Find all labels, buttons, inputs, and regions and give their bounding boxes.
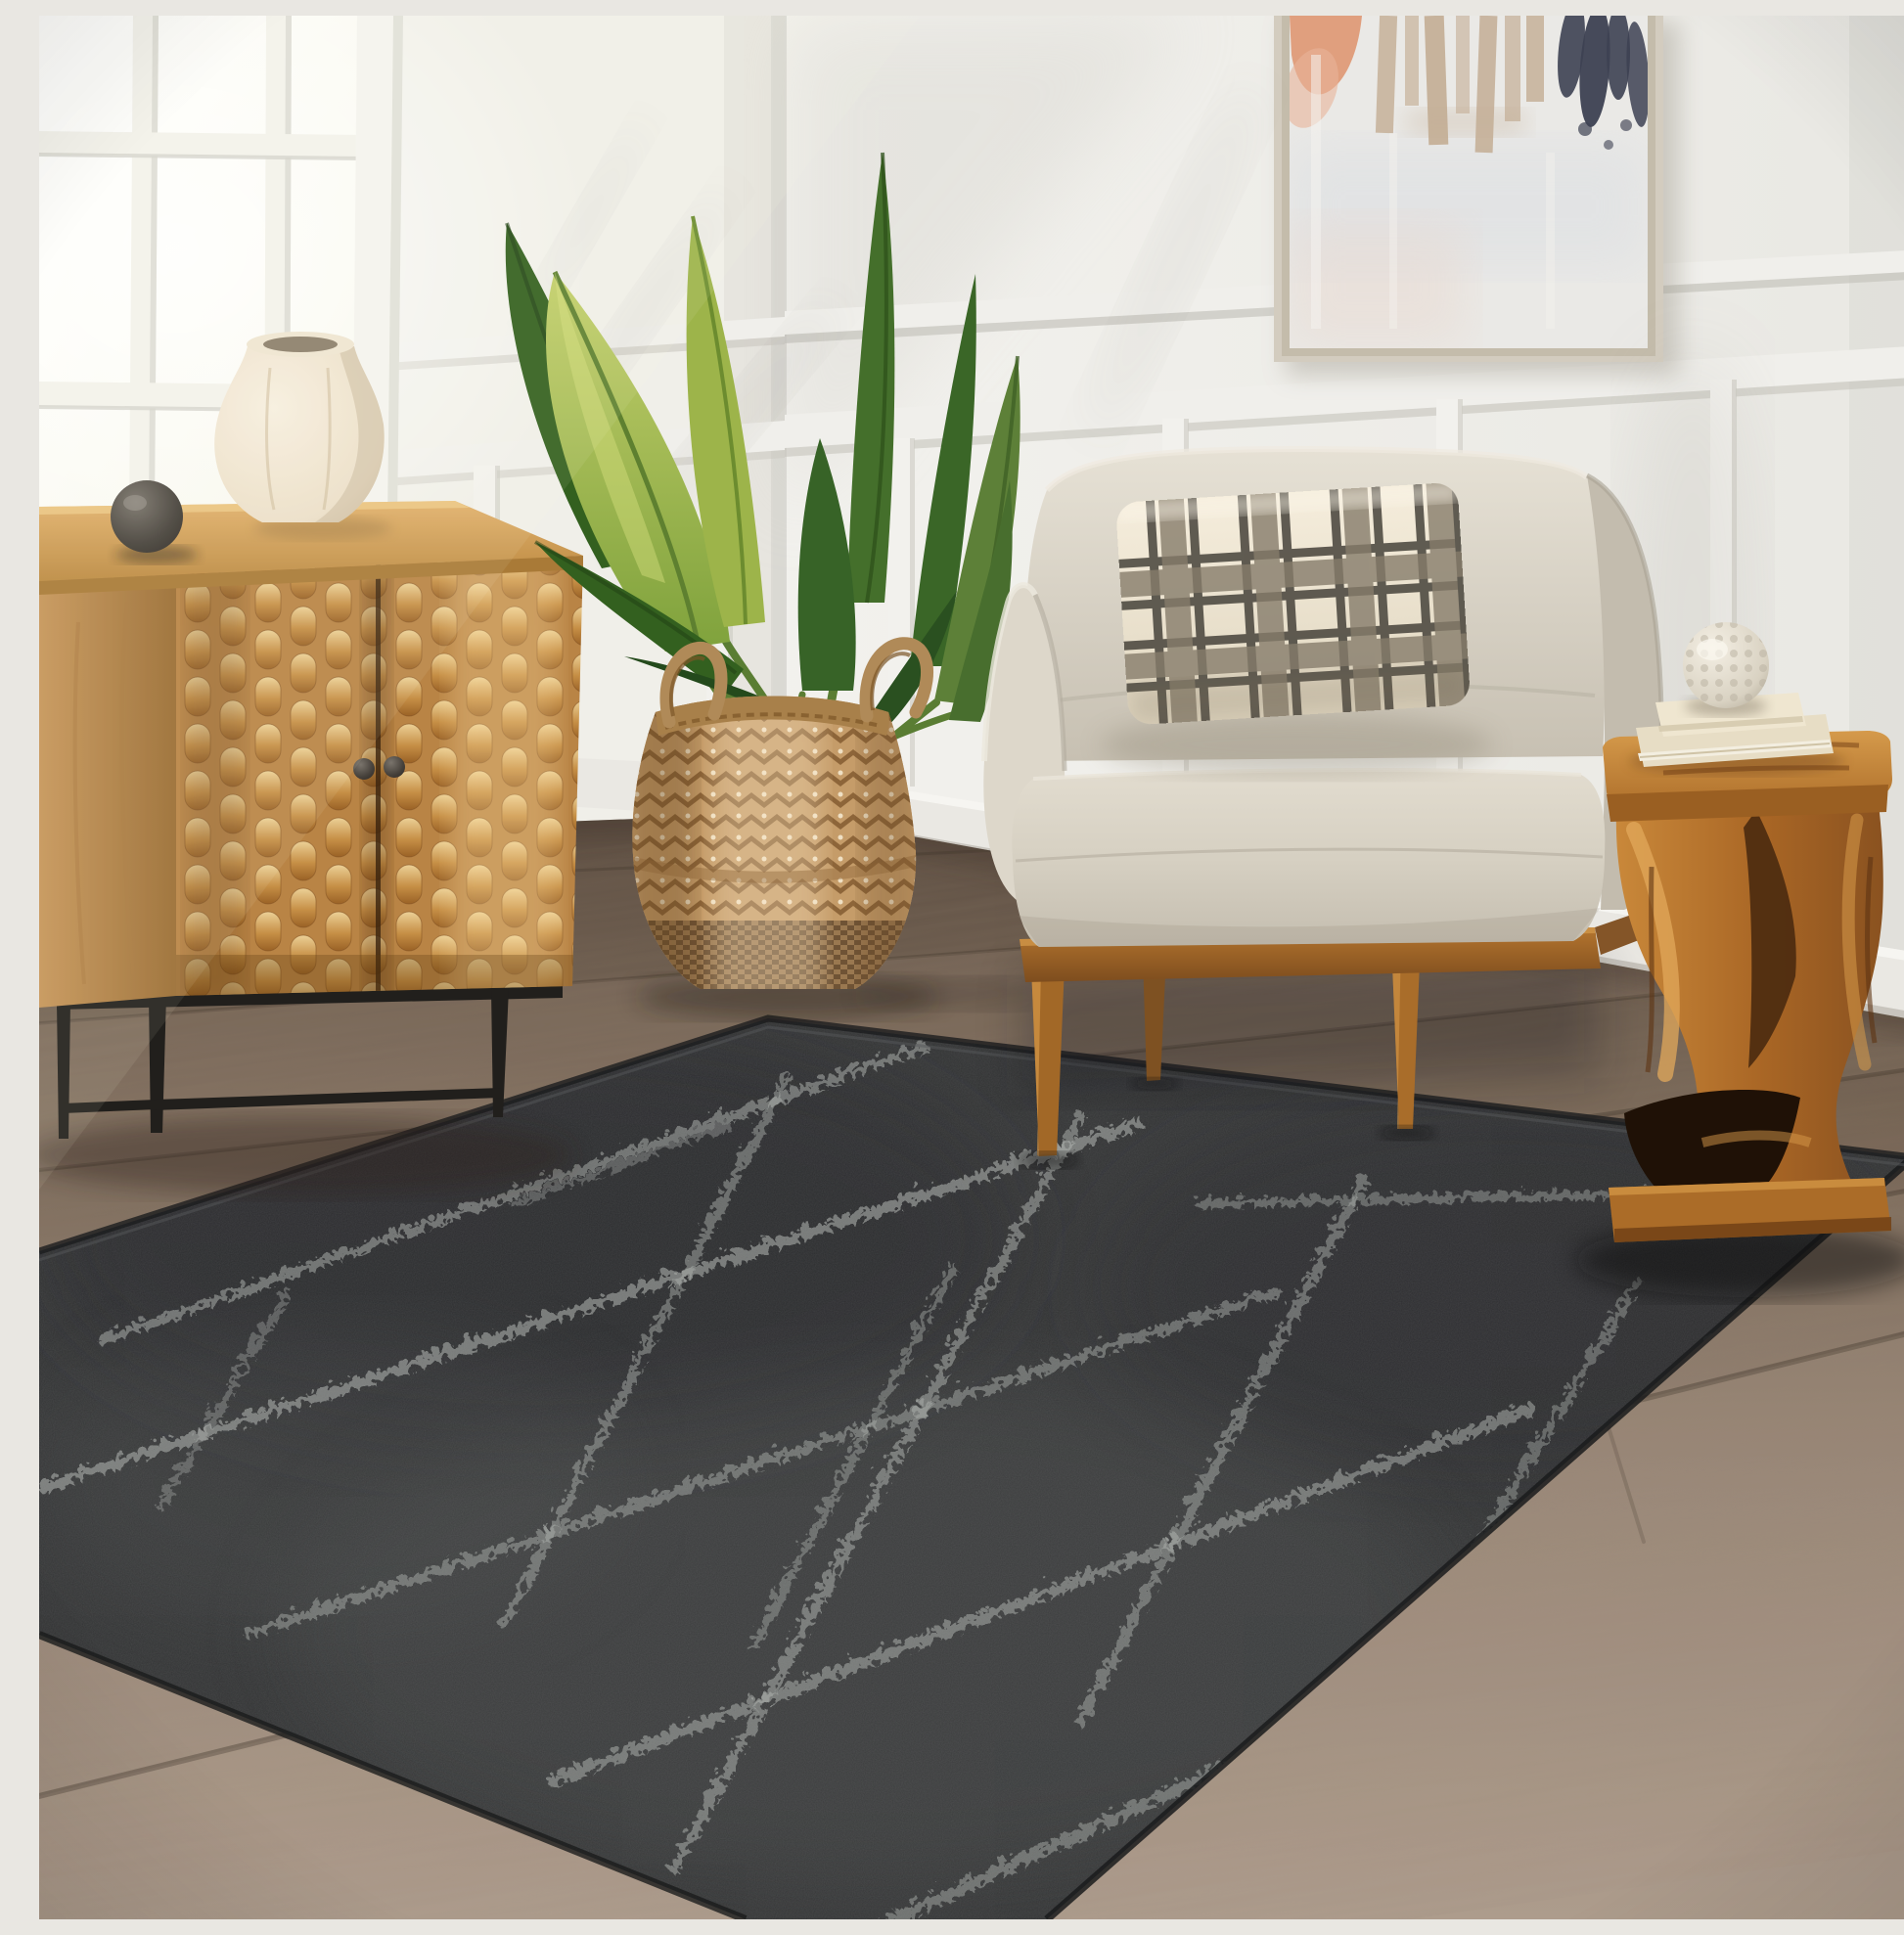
living-room-scene (39, 16, 1904, 1919)
lighting-overlays (39, 16, 1904, 1919)
product-photo (39, 16, 1904, 1919)
